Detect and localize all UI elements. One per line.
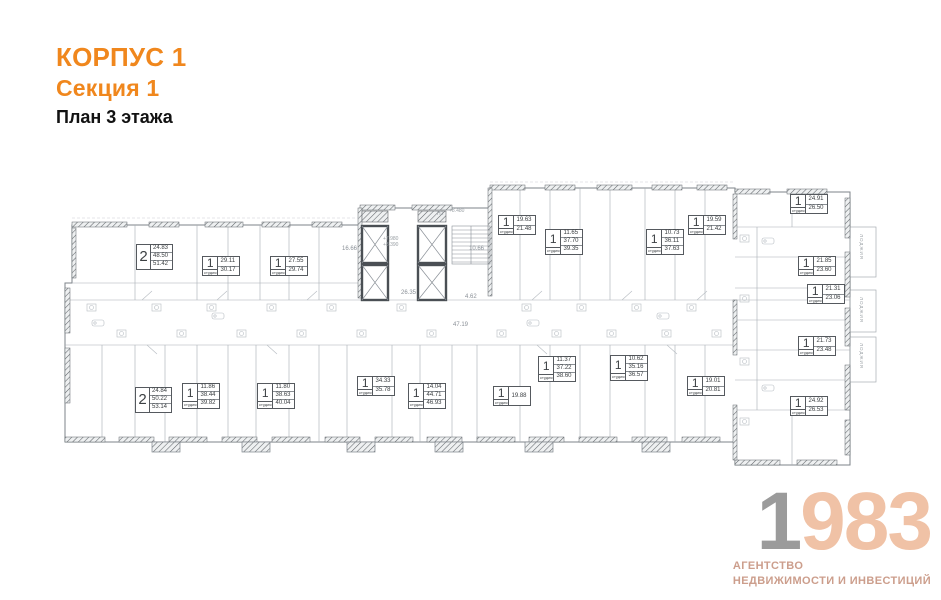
apartment-room-count: 1 <box>499 216 513 228</box>
apartment-areas: 10.7336.1137.63 <box>662 230 683 254</box>
common-area-label: 4.62 <box>465 294 477 300</box>
apartment-area-value: 21.31 <box>823 286 844 294</box>
apartment-rooms-column: 2 <box>136 388 150 412</box>
loggia-label: ЛОДЖИЯ <box>859 297 864 323</box>
apartment-rooms-column: 1студия <box>688 377 703 395</box>
apartment-areas: 27.5529.74 <box>286 257 307 275</box>
apartment-subtype: студия <box>183 401 197 407</box>
common-area-label: 47.19 <box>453 322 468 328</box>
apartment-area-value: 10.62 <box>626 356 647 364</box>
apartment-rooms-column: 1студия <box>271 257 286 275</box>
apartment-rooms-column: 1студия <box>546 230 561 254</box>
apartment-rooms-column: 1студия <box>808 285 823 303</box>
apartment-rooms-column: 1студия <box>258 384 273 408</box>
apartment-areas: 21.3123.06 <box>823 285 844 303</box>
apartment-room-count: 2 <box>136 388 149 412</box>
apartment-label: 1студия27.5529.74 <box>270 256 308 276</box>
apartment-subtype: студия <box>499 228 513 234</box>
apartment-area-value: 10.73 <box>662 230 683 238</box>
plan-header: КОРПУС 1 Секция 1 План 3 этажа <box>56 44 186 126</box>
logo-year: 1983 <box>717 488 931 555</box>
apartment-area-value: 50.22 <box>150 396 171 404</box>
logo-caption-line1: АГЕНТСТВО <box>733 560 803 572</box>
apartment-label: 1студия11.6537.7039.35 <box>545 229 583 255</box>
apartment-label: 1студия21.7323.48 <box>798 336 836 356</box>
apartment-subtype: студия <box>799 269 813 275</box>
elevation-mark: +8.390 <box>383 242 398 248</box>
apartment-rooms-column: 1студия <box>799 337 814 355</box>
apartment-area-value: 38.44 <box>198 392 219 400</box>
apartment-room-count: 1 <box>791 195 805 207</box>
apartment-room-count: 1 <box>183 384 197 401</box>
apartment-label: 1студия14.0444.7146.93 <box>408 383 446 409</box>
apartment-areas: 24.8348.5051.42 <box>151 245 172 269</box>
partition-walls <box>102 188 850 465</box>
apartment-area-value: 23.60 <box>814 267 835 274</box>
apartment-area-value: 19.63 <box>514 217 535 225</box>
apartment-area-value: 21.42 <box>704 226 725 233</box>
apartment-room-count: 1 <box>808 285 822 297</box>
apartment-area-value: 44.71 <box>424 392 445 400</box>
floor-title: План 3 этажа <box>56 108 186 126</box>
apartment-label: 1студия19.0120.81 <box>687 376 725 396</box>
apartment-area-value: 26.50 <box>806 205 827 212</box>
elevation-mark: Н2 <box>437 211 443 217</box>
apartment-label: 1студия19.88 <box>493 386 531 406</box>
apartment-label: 1студия11.3737.2238.60 <box>538 356 576 382</box>
apartment-subtype: студия <box>258 401 272 407</box>
apartment-rooms-column: 1студия <box>494 387 509 405</box>
apartment-room-count: 1 <box>799 337 813 349</box>
apartment-areas: 34.3335.78 <box>373 377 394 395</box>
apartment-subtype: студия <box>688 389 702 395</box>
apartment-rooms-column: 1студия <box>791 195 806 213</box>
apartment-room-count: 1 <box>258 384 272 401</box>
section-title: Секция 1 <box>56 77 186 100</box>
common-area-label: 10.66 <box>469 246 484 252</box>
apartment-room-count: 1 <box>799 257 813 269</box>
apartment-rooms-column: 1студия <box>647 230 662 254</box>
apartment-room-count: 1 <box>689 216 703 228</box>
apartment-area-value: 24.84 <box>150 388 171 396</box>
apartment-rooms-column: 1студия <box>358 377 373 395</box>
apartment-room-count: 2 <box>137 245 150 269</box>
dimension-lines <box>72 182 735 218</box>
apartment-area-value: 11.65 <box>561 230 582 238</box>
apartment-subtype: студия <box>647 247 661 253</box>
apartment-area-value: 51.42 <box>151 261 172 268</box>
apartment-label: 224.8348.5051.42 <box>136 244 173 270</box>
apartment-area-value: 29.11 <box>218 258 239 266</box>
floor-plan: 224.8348.5051.421студия29.1130.171студия… <box>57 180 879 472</box>
apartment-areas: 21.7323.48 <box>814 337 835 355</box>
apartment-area-value: 11.86 <box>198 384 219 392</box>
apartment-area-value: 24.91 <box>806 196 827 204</box>
apartment-subtype: студия <box>271 269 285 275</box>
apartment-areas: 11.3737.2238.60 <box>554 357 575 381</box>
apartment-subtype: студия <box>799 349 813 355</box>
apartment-rooms-column: 1студия <box>539 357 554 381</box>
apartment-subtype: студия <box>203 269 217 275</box>
logo-year-gray: 1 <box>757 476 801 567</box>
elevation-mark: +8.480 <box>449 208 464 214</box>
apartment-areas: 11.6537.7039.35 <box>561 230 582 254</box>
apartment-area-value: 19.59 <box>704 217 725 225</box>
apartment-area-value: 48.50 <box>151 253 172 261</box>
loggia-label: ЛОДЖИЯ <box>859 234 864 260</box>
apartment-area-value: 36.11 <box>662 238 683 246</box>
apartment-room-count: 1 <box>611 356 625 373</box>
apartment-area-value: 30.17 <box>218 267 239 274</box>
apartment-label: 1студия19.6321.48 <box>498 215 536 235</box>
apartment-subtype: студия <box>791 207 805 213</box>
apartment-room-count: 1 <box>358 377 372 389</box>
apartment-subtype: студия <box>791 409 805 415</box>
apartment-area-value: 11.37 <box>554 357 575 365</box>
apartment-area-value: 29.74 <box>286 267 307 274</box>
apartment-area-value: 23.06 <box>823 295 844 302</box>
apartment-areas: 11.8638.4439.82 <box>198 384 219 408</box>
apartment-subtype: студия <box>689 228 703 234</box>
apartment-area-value: 26.53 <box>806 407 827 414</box>
apartment-areas: 19.5921.42 <box>704 216 725 234</box>
apartment-label: 1студия24.9226.53 <box>790 396 828 416</box>
apartment-area-value: 20.81 <box>703 387 724 394</box>
apartment-area-value: 11.80 <box>273 384 294 392</box>
apartment-area-value: 37.22 <box>554 365 575 373</box>
apartment-room-count: 1 <box>539 357 553 374</box>
apartment-area-value: 34.33 <box>373 378 394 386</box>
apartment-area-value: 53.14 <box>150 404 171 411</box>
apartment-label: 1студия11.8038.6340.04 <box>257 383 295 409</box>
apartment-subtype: студия <box>611 373 625 379</box>
apartment-area-value: 37.70 <box>561 238 582 246</box>
apartment-area-value: 23.48 <box>814 347 835 354</box>
apartment-area-value: 24.83 <box>151 245 172 253</box>
apartment-subtype: студия <box>546 247 560 253</box>
apartment-area-value: 36.57 <box>626 372 647 379</box>
apartment-area-value: 38.63 <box>273 392 294 400</box>
apartment-area-value: 19.88 <box>509 393 530 400</box>
agency-logo: 1983 АГЕНТСТВО НЕДВИЖИМОСТИ И ИНВЕСТИЦИЙ <box>717 488 931 588</box>
apartment-room-count: 1 <box>409 384 423 401</box>
apartment-label: 1студия34.3335.78 <box>357 376 395 396</box>
apartment-label: 1студия21.8523.60 <box>798 256 836 276</box>
apartment-room-count: 1 <box>688 377 702 389</box>
apartment-areas: 19.0120.81 <box>703 377 724 395</box>
apartment-room-count: 1 <box>203 257 217 269</box>
apartment-label: 224.8450.2253.14 <box>135 387 172 413</box>
apartment-subtype: студия <box>358 389 372 395</box>
apartment-label: 1студия29.1130.17 <box>202 256 240 276</box>
logo-caption-line2: НЕДВИЖИМОСТИ И ИНВЕСТИЦИЙ <box>733 575 931 587</box>
apartment-area-value: 24.92 <box>806 398 827 406</box>
apartment-room-count: 1 <box>494 387 508 399</box>
apartment-rooms-column: 1студия <box>689 216 704 234</box>
staircase <box>452 226 490 264</box>
apartment-room-count: 1 <box>271 257 285 269</box>
apartment-area-value: 39.82 <box>198 400 219 407</box>
apartment-area-value: 46.93 <box>424 400 445 407</box>
apartment-room-count: 1 <box>546 230 560 247</box>
apartment-subtype: студия <box>409 401 423 407</box>
loggia-label: ЛОДЖИЯ <box>859 343 864 369</box>
apartment-area-value: 39.35 <box>561 246 582 253</box>
common-area-label: 16.66 <box>342 246 357 252</box>
apartment-area-value: 19.01 <box>703 378 724 386</box>
apartment-areas: 24.8450.2253.14 <box>150 388 171 412</box>
logo-year-peach: 983 <box>800 476 931 567</box>
apartment-areas: 21.8523.60 <box>814 257 835 275</box>
entrance-stoops <box>152 442 670 452</box>
apartment-rooms-column: 1студия <box>409 384 424 408</box>
apartment-area-value: 35.78 <box>373 387 394 394</box>
apartment-area-value: 37.63 <box>662 246 683 253</box>
apartment-area-value: 21.48 <box>514 226 535 233</box>
apartment-areas: 24.9126.50 <box>806 195 827 213</box>
elevator-shafts <box>362 211 446 300</box>
apartment-areas: 14.0444.7146.93 <box>424 384 445 408</box>
apartment-label: 1студия10.7336.1137.63 <box>646 229 684 255</box>
apartment-areas: 19.6321.48 <box>514 216 535 234</box>
apartment-rooms-column: 1студия <box>499 216 514 234</box>
apartment-subtype: студия <box>808 297 822 303</box>
building-title: КОРПУС 1 <box>56 44 186 70</box>
apartment-area-value: 38.60 <box>554 373 575 380</box>
apartment-label: 1студия10.6235.1636.57 <box>610 355 648 381</box>
apartment-area-value: 21.85 <box>814 258 835 266</box>
apartment-room-count: 1 <box>791 397 805 409</box>
apartment-subtype: студия <box>494 399 508 405</box>
apartment-areas: 10.6235.1636.57 <box>626 356 647 380</box>
apartment-areas: 19.88 <box>509 387 530 405</box>
apartment-subtype: студия <box>539 374 553 380</box>
apartment-label: 1студия21.3123.06 <box>807 284 845 304</box>
apartment-rooms-column: 1студия <box>183 384 198 408</box>
apartment-room-count: 1 <box>647 230 661 247</box>
apartment-areas: 24.9226.53 <box>806 397 827 415</box>
apartment-area-value: 35.16 <box>626 364 647 372</box>
apartment-label: 1студия11.8638.4439.82 <box>182 383 220 409</box>
apartment-areas: 29.1130.17 <box>218 257 239 275</box>
apartment-area-value: 27.55 <box>286 258 307 266</box>
apartment-rooms-column: 1студия <box>203 257 218 275</box>
plan-sheet: КОРПУС 1 Секция 1 План 3 этажа <box>0 0 941 600</box>
apartment-area-value: 21.73 <box>814 338 835 346</box>
apartment-area-value: 14.04 <box>424 384 445 392</box>
common-area-label: 26.35 <box>401 290 416 296</box>
apartment-areas: 11.8038.6340.04 <box>273 384 294 408</box>
apartment-rooms-column: 1студия <box>791 397 806 415</box>
corridor-lines <box>65 283 850 345</box>
apartment-label: 1студия19.5921.42 <box>688 215 726 235</box>
apartment-rooms-column: 1студия <box>799 257 814 275</box>
apartment-rooms-column: 1студия <box>611 356 626 380</box>
apartment-rooms-column: 2 <box>137 245 151 269</box>
apartment-area-value: 40.04 <box>273 400 294 407</box>
apartment-label: 1студия24.9126.50 <box>790 194 828 214</box>
